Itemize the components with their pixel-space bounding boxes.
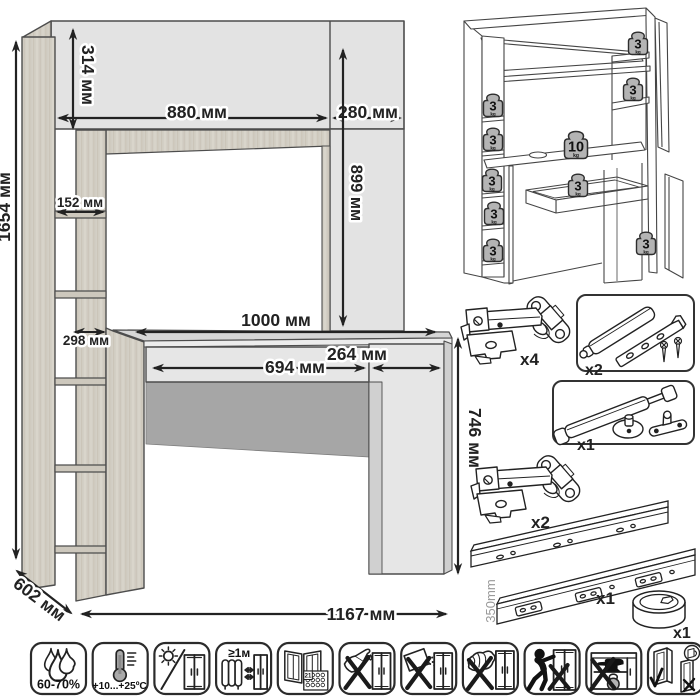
svg-text:x4: x4: [520, 350, 539, 369]
svg-text:152 мм: 152 мм: [57, 195, 103, 210]
svg-text:298 мм: 298 мм: [63, 333, 109, 348]
svg-text:314 мм: 314 мм: [78, 45, 98, 105]
svg-text:880 мм: 880 мм: [167, 102, 227, 122]
svg-text:1167 мм: 1167 мм: [327, 604, 396, 624]
svg-text:x1: x1: [596, 589, 615, 608]
svg-text:350mm: 350mm: [483, 579, 498, 622]
svg-text:899 мм: 899 мм: [347, 165, 365, 222]
svg-text:60-70%: 60-70%: [37, 678, 80, 692]
svg-text:+10...+25ºC: +10...+25ºC: [93, 681, 148, 692]
svg-text:≥1м: ≥1м: [228, 646, 250, 660]
svg-text:x1: x1: [673, 625, 691, 642]
svg-text:264 мм: 264 мм: [327, 344, 387, 364]
svg-text:280 мм: 280 мм: [338, 102, 398, 122]
svg-text:x1: x1: [577, 437, 595, 454]
svg-text:694 мм: 694 мм: [265, 357, 325, 377]
svg-text:1654 мм: 1654 мм: [0, 172, 14, 242]
svg-text:746 мм: 746 мм: [465, 408, 485, 468]
svg-text:x2: x2: [585, 362, 603, 379]
svg-text:1000 мм: 1000 мм: [241, 310, 311, 330]
svg-text:21: 21: [305, 674, 312, 680]
